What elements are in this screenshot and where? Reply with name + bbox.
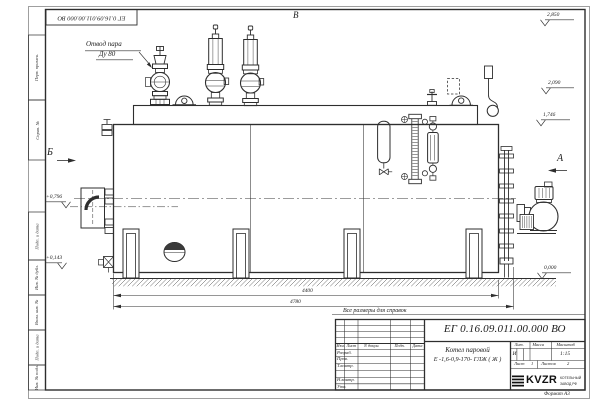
sheet-label: Лист xyxy=(514,362,525,367)
header-lit: Лит. xyxy=(515,343,524,347)
doc-number: ЕГ 0.16.09.011.00.000 ВО xyxy=(425,324,586,335)
header-mass: Масса xyxy=(533,343,545,347)
sheet-frame xyxy=(29,7,590,399)
sheet-value: 1 xyxy=(531,362,533,367)
margin-stamp-inv-dubl: Инв. № дубл. xyxy=(29,260,46,295)
lifting-lug-front xyxy=(173,96,197,105)
product-name-line1: Котел паровой xyxy=(425,347,511,354)
steam-outlet-valve xyxy=(146,46,170,105)
sheets-label: Листов xyxy=(541,362,556,367)
dimension-4400: 4400 xyxy=(302,289,313,294)
margin-stamp-perv-primen: Перв. примен. xyxy=(29,35,46,100)
sig-row-utv: Утв. xyxy=(337,385,347,390)
sig-row-nkontr: Н.контр. xyxy=(337,378,355,383)
kvzr-logo: KVZR xyxy=(526,374,557,386)
blower-assembly xyxy=(517,182,558,234)
ground xyxy=(110,279,556,287)
elevation-2090: 2,090 xyxy=(548,81,560,87)
kvzr-logo-caption2: ЗАВОД РФ xyxy=(560,382,577,386)
margin-stamp-podp-data-1: Подп. и дата xyxy=(29,212,46,260)
col-header-izm: Изм. xyxy=(337,344,345,348)
reference-note: Все размеры для справок xyxy=(343,308,407,314)
top-reference-stamp: ЕГ 0.16.09.011.00.000 ВО xyxy=(46,10,137,26)
burner xyxy=(81,188,105,228)
callout-steam-outlet-line1: Отвод пара xyxy=(86,41,122,48)
col-header-data: Дата xyxy=(413,344,423,348)
callout-leader xyxy=(85,51,152,68)
elevation-0000: 0,000 xyxy=(544,266,556,272)
callout-steam-outlet-line2: Ду 80 xyxy=(99,51,115,58)
sig-row-prov: Пров. xyxy=(337,357,348,362)
sig-row-razrab: Разраб. xyxy=(337,351,352,356)
rear-fitting-column xyxy=(500,147,514,278)
dimension-lines xyxy=(114,267,514,310)
elevation-2850: 2,850 xyxy=(547,13,559,19)
format-label: Формат А3 xyxy=(544,392,570,397)
margin-stamp-sprav-no: Справ. № xyxy=(29,100,46,160)
scale-value: 1:15 xyxy=(560,352,570,358)
header-scale: Масштаб xyxy=(557,343,575,347)
view-arrows xyxy=(57,158,567,173)
front-nozzles xyxy=(99,120,114,273)
product-name-line2: Е -1,6-0,9-170- ГЛЖ ( Ж ) xyxy=(425,357,511,363)
col-header-list: Лист xyxy=(347,344,357,348)
view-label-v: В xyxy=(293,11,299,20)
safety-valve-1 xyxy=(206,25,229,105)
elevation-0796: +0,796 xyxy=(46,195,62,201)
margin-stamp-inv-podl: Инв. № подл. xyxy=(29,365,46,390)
col-header-podp: Подп. xyxy=(395,344,405,348)
manhole xyxy=(164,243,185,262)
support-legs xyxy=(123,229,482,278)
col-header-dokum: N докум. xyxy=(364,344,379,348)
kvzr-logo-caption1: КОТЕЛЬНЫЙ xyxy=(560,376,581,380)
sig-row-tkontr: Т.контр. xyxy=(337,364,354,369)
view-label-a: А xyxy=(557,154,563,164)
drawing-canvas xyxy=(0,0,600,400)
safety-valve-2 xyxy=(241,26,264,106)
lit-value: И xyxy=(513,352,517,358)
margin-stamp-podp-data-2: Подп. и дата xyxy=(29,330,46,365)
view-label-b: Б xyxy=(47,148,53,158)
drawing-sheet: ЕГ 0.16.09.011.00.000 ВО Перв. примен. С… xyxy=(0,0,600,400)
margin-stamp-vzam-inv: Взам. инв. № xyxy=(29,295,46,330)
rear-top-fittings xyxy=(427,66,498,116)
sheets-value: 2 xyxy=(567,362,569,367)
elevation-0143: +0,143 xyxy=(46,256,62,262)
dimension-4780: 4780 xyxy=(290,300,301,305)
elevation-1746: 1,746 xyxy=(543,113,555,119)
